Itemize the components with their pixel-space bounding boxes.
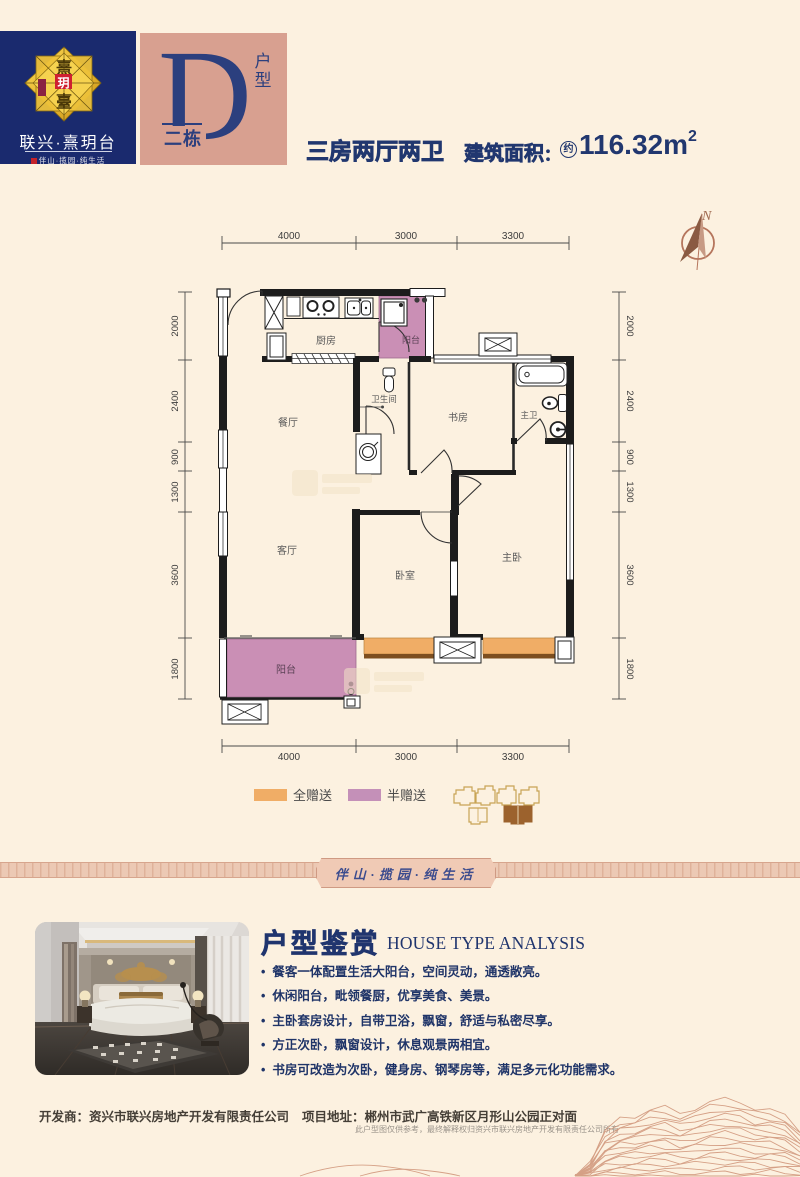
svg-text:3300: 3300 bbox=[502, 231, 525, 242]
svg-text:2000: 2000 bbox=[624, 315, 635, 336]
svg-text:卧室: 卧室 bbox=[395, 569, 415, 582]
svg-text:半赠送: 半赠送 bbox=[387, 788, 426, 803]
svg-text:900: 900 bbox=[624, 449, 635, 465]
svg-text:4000: 4000 bbox=[278, 752, 301, 763]
svg-text:3300: 3300 bbox=[502, 752, 525, 763]
svg-text:3600: 3600 bbox=[624, 564, 635, 585]
svg-text:N: N bbox=[701, 209, 712, 224]
svg-text:3000: 3000 bbox=[395, 752, 418, 763]
svg-text:阳台: 阳台 bbox=[402, 334, 420, 345]
svg-text:阳台: 阳台 bbox=[276, 663, 296, 676]
svg-text:1300: 1300 bbox=[624, 481, 635, 502]
svg-text:4000: 4000 bbox=[278, 231, 301, 242]
svg-text:厨房: 厨房 bbox=[316, 334, 336, 347]
svg-text:全赠送: 全赠送 bbox=[293, 788, 332, 803]
svg-text:1800: 1800 bbox=[624, 658, 635, 679]
svg-text:主卧: 主卧 bbox=[502, 551, 522, 564]
svg-text:2400: 2400 bbox=[624, 390, 635, 411]
svg-text:客厅: 客厅 bbox=[277, 544, 297, 557]
svg-text:1800: 1800 bbox=[170, 658, 181, 679]
svg-text:书房: 书房 bbox=[448, 411, 468, 424]
svg-text:3600: 3600 bbox=[170, 564, 181, 585]
svg-text:900: 900 bbox=[170, 449, 181, 465]
svg-text:1300: 1300 bbox=[170, 481, 181, 502]
svg-text:主卫: 主卫 bbox=[520, 410, 538, 420]
svg-text:2400: 2400 bbox=[170, 390, 181, 411]
svg-text:餐厅: 餐厅 bbox=[278, 416, 298, 429]
svg-text:3000: 3000 bbox=[395, 231, 418, 242]
svg-text:2000: 2000 bbox=[170, 315, 181, 336]
svg-text:卫生间: 卫生间 bbox=[371, 394, 397, 404]
